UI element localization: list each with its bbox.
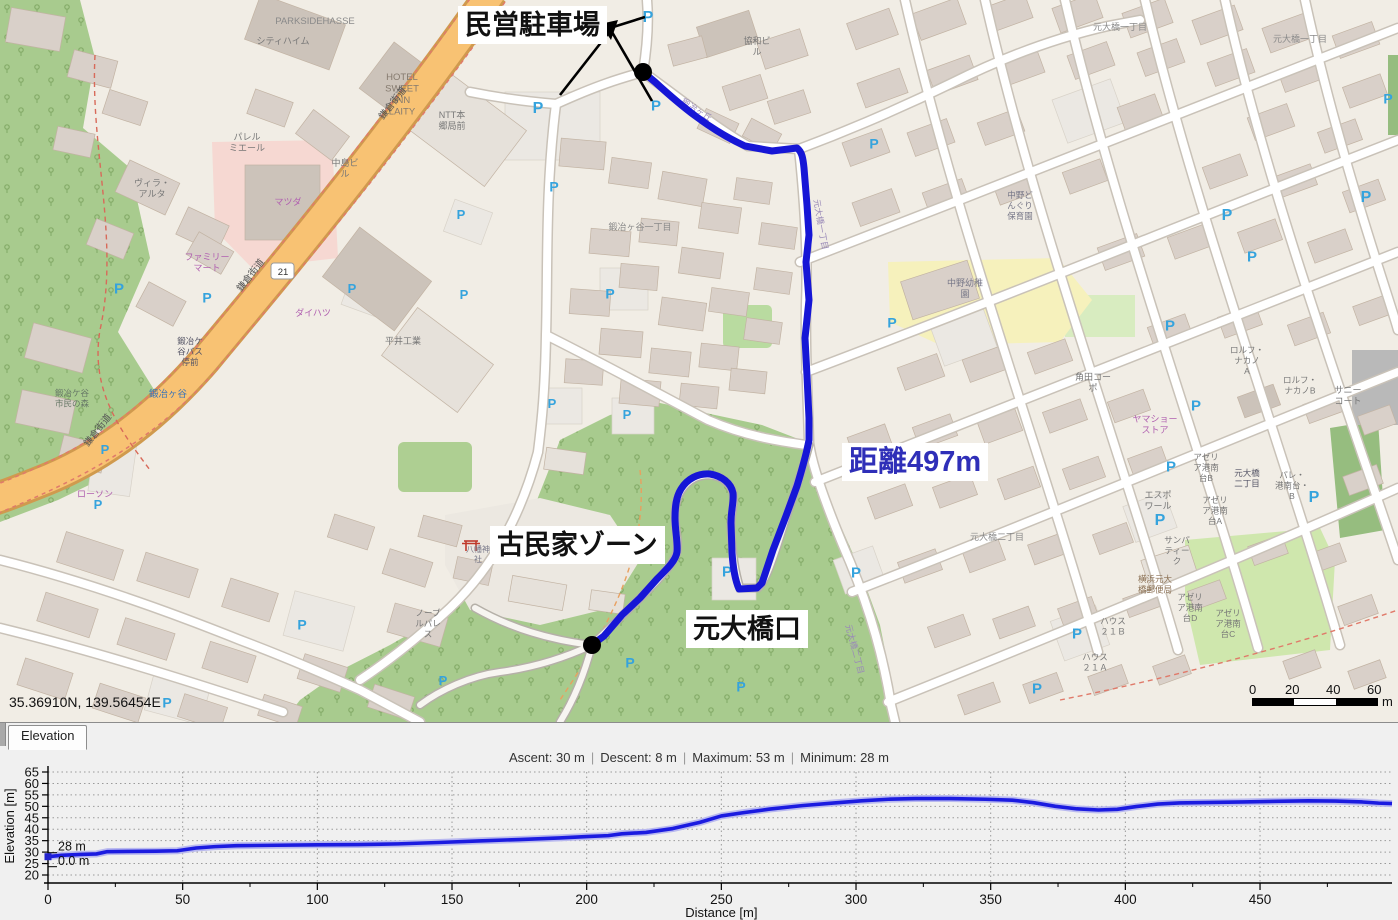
y-tick-label: 20 bbox=[25, 868, 39, 883]
parking-icon: P bbox=[1383, 90, 1392, 106]
map-label-moto1: 元大橋一丁目 bbox=[1273, 33, 1327, 44]
annotation-motoohashi: 元大橋口 bbox=[686, 610, 808, 648]
parking-icon: P bbox=[94, 497, 103, 512]
building bbox=[619, 263, 659, 290]
scale-tick-20: 20 bbox=[1285, 682, 1299, 697]
tab-elevation[interactable]: Elevation bbox=[8, 725, 87, 750]
map-label-hirai: 平井工業 bbox=[385, 335, 421, 346]
parking-icon: P bbox=[162, 694, 171, 710]
parking-icon: P bbox=[348, 281, 357, 296]
parking-icon: P bbox=[1166, 459, 1176, 476]
building bbox=[754, 268, 793, 295]
map-label-daihatsu: ダイハツ bbox=[295, 307, 331, 318]
annotation-kominka: 古民家ゾーン bbox=[490, 526, 665, 564]
parking-icon: P bbox=[1155, 512, 1166, 529]
building bbox=[608, 157, 651, 188]
building bbox=[589, 228, 631, 256]
parking-icon: P bbox=[623, 407, 632, 422]
map-label-cityheim: シティハイム bbox=[256, 36, 309, 46]
x-tick-label: 150 bbox=[441, 892, 464, 907]
stat-minimum: Minimum: 28 m bbox=[800, 750, 889, 765]
parking-icon: P bbox=[533, 100, 544, 117]
map-label-route_badge: 21 bbox=[278, 267, 289, 278]
map-label-sunny: サニーコート bbox=[1334, 385, 1361, 406]
parking-icon: P bbox=[887, 314, 896, 330]
x-tick-label: 100 bbox=[306, 892, 329, 907]
building bbox=[658, 297, 706, 331]
parking-icon: P bbox=[1032, 681, 1042, 698]
x-tick-label: 450 bbox=[1249, 892, 1272, 907]
map-label-moto2: 元大橋二丁目 bbox=[970, 531, 1024, 542]
map-label-house_a: ハウス２１Ａ bbox=[1082, 652, 1108, 673]
elevation-panel: 6560555045403530252005010015020025030035… bbox=[0, 746, 1398, 920]
map-label-nakano_hoiku: 中野どんぐり保育園 bbox=[1007, 190, 1033, 221]
parking-icon: P bbox=[736, 678, 745, 694]
scale-bar-strip bbox=[1252, 698, 1378, 706]
route-viewer-app: PPPPPPPPPPPPPPPPPPPPPPPPPPPPPPPPPP PARKS… bbox=[0, 0, 1398, 920]
elevation-stats: Ascent: 30 m|Descent: 8 m|Maximum: 53 m|… bbox=[0, 750, 1398, 765]
building bbox=[744, 318, 783, 345]
building bbox=[699, 343, 739, 371]
x-tick-label: 350 bbox=[979, 892, 1002, 907]
building bbox=[729, 368, 767, 394]
x-tick-label: 200 bbox=[575, 892, 598, 907]
parking-icon: P bbox=[1309, 489, 1320, 506]
building bbox=[759, 223, 798, 250]
route-start-marker bbox=[634, 63, 652, 81]
stat-descent: Descent: 8 m bbox=[600, 750, 677, 765]
map-label-house_b: ハウス２１Ｂ bbox=[1100, 616, 1126, 637]
parking-icon: P bbox=[460, 287, 469, 302]
building bbox=[559, 138, 606, 170]
parking-icon: P bbox=[297, 616, 306, 632]
parking-icon: P bbox=[625, 654, 634, 670]
building bbox=[709, 287, 750, 316]
x-tick-label: 50 bbox=[175, 892, 190, 907]
parking-icon: P bbox=[1247, 249, 1257, 266]
parking-icon: P bbox=[1072, 626, 1082, 643]
cursor-distance: 0.0 m bbox=[58, 854, 89, 868]
profile-halo bbox=[48, 799, 1392, 857]
scale-tick-0: 0 bbox=[1249, 682, 1256, 697]
building bbox=[649, 348, 691, 377]
map-label-moto1: 元大橋一丁目 bbox=[1093, 21, 1147, 32]
x-tick-label: 300 bbox=[845, 892, 868, 907]
parking-icon: P bbox=[869, 135, 878, 151]
parking-icon: P bbox=[1165, 318, 1175, 335]
x-axis-title: Distance [m] bbox=[685, 905, 757, 920]
parking-icon: P bbox=[549, 178, 558, 194]
map-scale-bar: 0 20 40 60 m bbox=[1246, 682, 1392, 714]
scale-tick-40: 40 bbox=[1326, 682, 1340, 697]
building bbox=[698, 202, 741, 233]
stat-maximum: Maximum: 53 m bbox=[692, 750, 784, 765]
x-tick-label: 400 bbox=[1114, 892, 1137, 907]
stat-ascent: Ascent: 30 m bbox=[509, 750, 585, 765]
cursor-coordinates: 35.36910N, 139.56454E bbox=[9, 694, 161, 710]
parking-icon: P bbox=[1222, 207, 1233, 224]
map-label-palermo: パレルミエール bbox=[229, 132, 265, 153]
parking-icon: P bbox=[1191, 398, 1201, 415]
parking-icon: P bbox=[851, 565, 861, 582]
building bbox=[599, 328, 643, 358]
map-label-lawson: ローソン bbox=[77, 489, 113, 499]
map-label-mazda: マツダ bbox=[274, 196, 301, 207]
cursor-elevation: 28 m bbox=[58, 840, 86, 854]
map-label-moto2_bus: 元大橋二丁目 bbox=[1234, 468, 1260, 489]
parking-icon: P bbox=[605, 285, 614, 301]
parking-icon: P bbox=[202, 289, 211, 305]
map-label-post: 横浜元大橋郵便局 bbox=[1138, 574, 1173, 595]
panel-tab-bar: Elevation bbox=[0, 722, 1398, 746]
annotation-parking: 民営駐車場 bbox=[458, 6, 607, 44]
parking-icon: P bbox=[439, 673, 448, 688]
map-label-espoir: エスポワール bbox=[1144, 490, 1171, 511]
elevation-chart: 6560555045403530252005010015020025030035… bbox=[0, 746, 1398, 920]
map-label-rolf_b: ロルフ・ナカノB bbox=[1283, 375, 1317, 396]
map-label-kajiya_blue: 鍛冶ヶ谷 bbox=[149, 388, 188, 400]
scale-tick-60: 60 bbox=[1367, 682, 1381, 697]
building bbox=[734, 178, 773, 205]
parking-icon: P bbox=[1361, 189, 1372, 206]
building bbox=[678, 247, 723, 279]
map-label-kajiya1: 鍛冶ヶ谷一丁目 bbox=[608, 221, 671, 232]
parking-icon: P bbox=[457, 207, 466, 222]
y-axis-title: Elevation [m] bbox=[2, 788, 17, 863]
parking-icon: P bbox=[101, 442, 110, 457]
map-label-parkside: PARKSIDEHASSE bbox=[275, 16, 355, 27]
parking-icon: P bbox=[114, 281, 124, 298]
x-tick-label: 0 bbox=[44, 892, 52, 907]
profile-start-marker bbox=[45, 853, 52, 860]
annotation-distance: 距離497m bbox=[842, 443, 988, 481]
map-label-shimin_mori: 鍛冶ケ谷市民の森 bbox=[55, 388, 90, 409]
route-end-marker bbox=[583, 636, 601, 654]
parking-icon: P bbox=[548, 396, 557, 411]
scale-unit: m bbox=[1382, 694, 1393, 709]
